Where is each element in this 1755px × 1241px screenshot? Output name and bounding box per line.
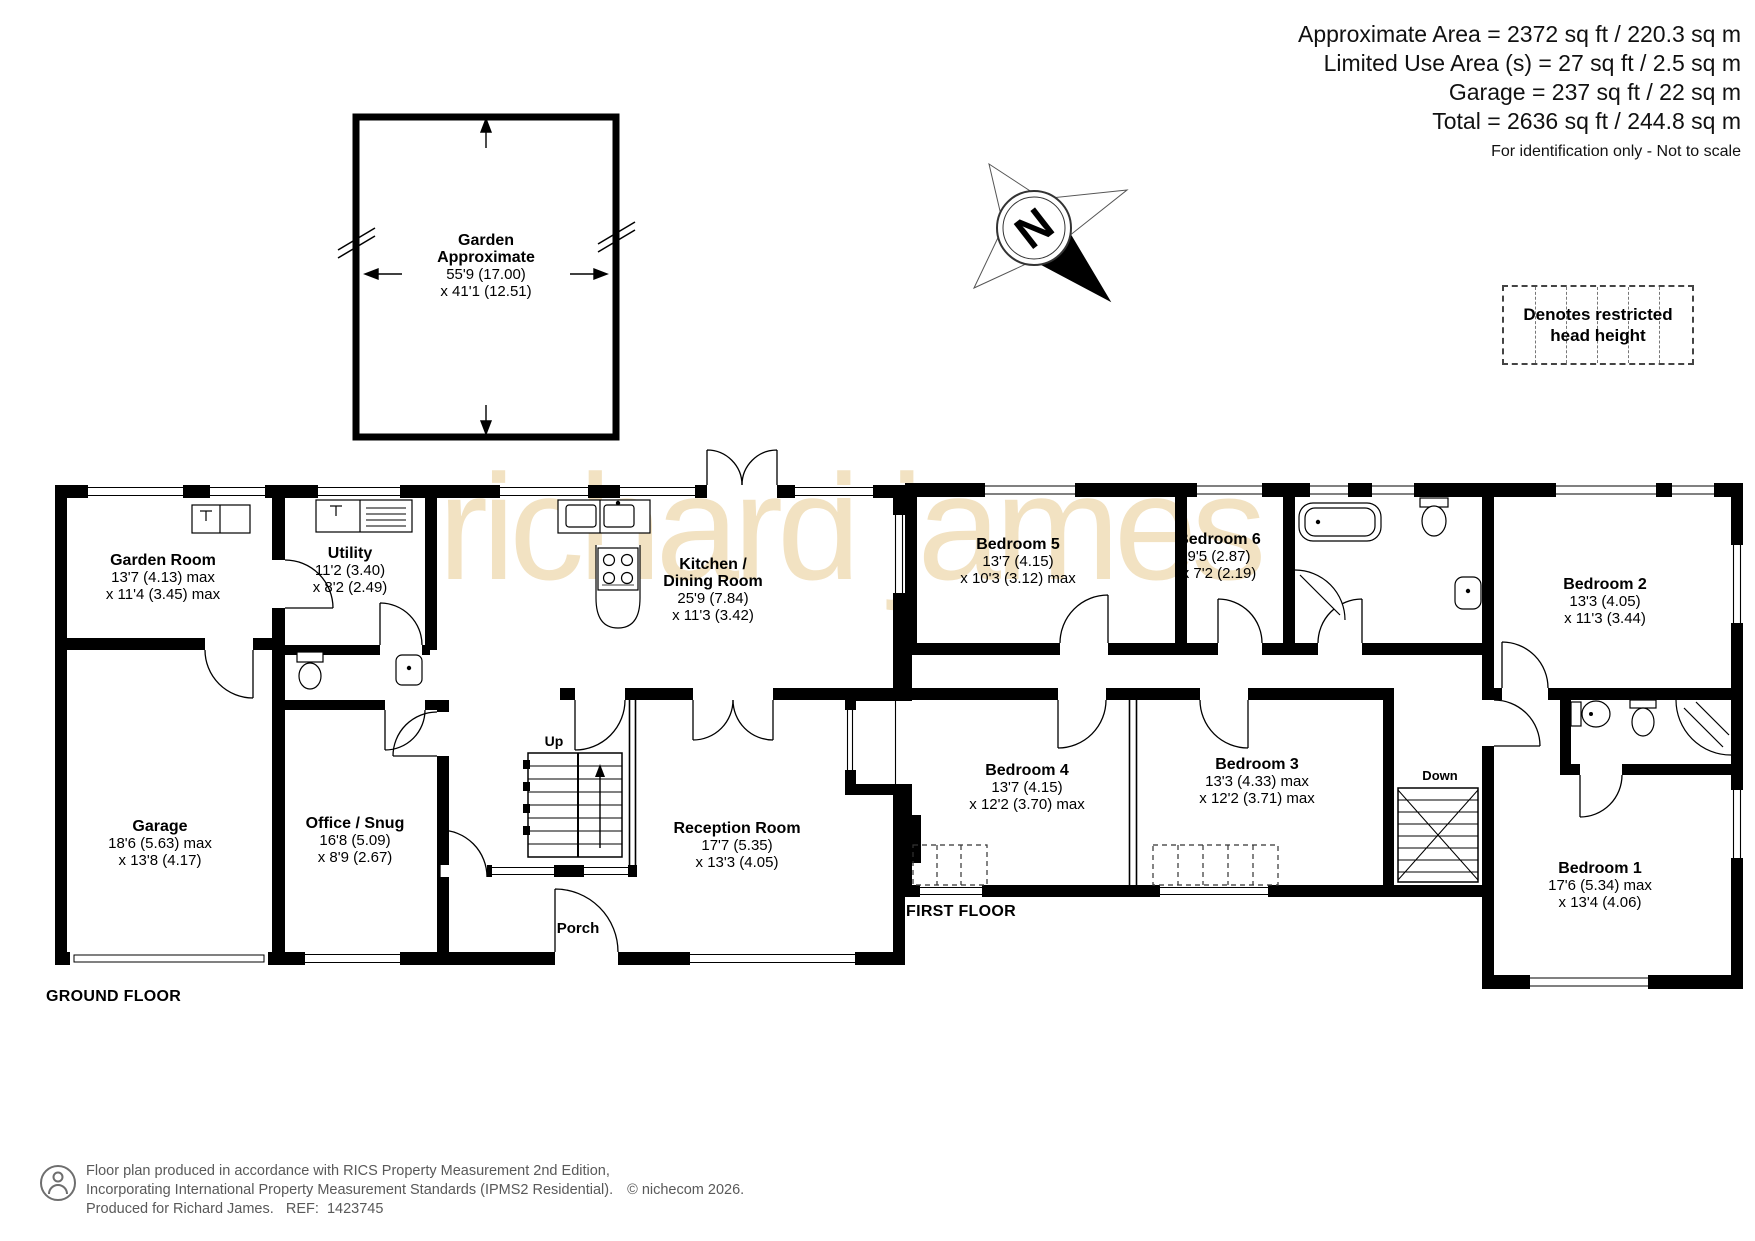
floorplan-page: richard james <box>0 0 1755 1241</box>
toilet-icon <box>1420 498 1448 536</box>
hob-peninsula-icon <box>596 545 640 628</box>
footer-line2: Incorporating International Property Mea… <box>86 1181 744 1200</box>
stairs-down-label: Down <box>1422 768 1457 783</box>
ensuite-basin-icon <box>1571 701 1610 727</box>
plan-drawing: N <box>0 0 1755 1241</box>
room-label-bedroom4: Bedroom 4 13'7 (4.15) x 12'2 (3.70) max <box>969 762 1084 813</box>
room-label-garage: Garage 18'6 (5.63) max x 13'8 (4.17) <box>108 818 212 869</box>
ensuite-toilet-icon <box>1630 700 1656 736</box>
footer: Floor plan produced in accordance with R… <box>86 1162 744 1219</box>
garden-room-unit-icon <box>192 505 250 533</box>
ensuite-corner-shower-icon <box>1676 700 1731 755</box>
basin-icon <box>1455 577 1481 609</box>
legend-text-line2: head height <box>1504 325 1692 346</box>
room-label-kitchen-dining: Kitchen / Dining Room 25'9 (7.84) x 11'3… <box>663 556 763 624</box>
ensuite-fixtures <box>1571 700 1731 755</box>
room-label-bedroom2: Bedroom 2 13'3 (4.05) x 11'3 (3.44) <box>1563 576 1647 627</box>
restricted-head-height-legend: Denotes restricted head height <box>1502 285 1694 365</box>
room-label-office-snug: Office / Snug 16'8 (5.09) x 8'9 (2.67) <box>306 815 405 866</box>
ground-floor-title: GROUND FLOOR <box>46 988 181 1006</box>
bedroom34-partition <box>1130 700 1137 885</box>
approximate-area-line: Approximate Area = 2372 sq ft / 220.3 sq… <box>1298 20 1741 49</box>
room-label-bedroom6: Bedroom 6 9'5 (2.87) x 7'2 (2.19) <box>1177 531 1261 582</box>
ground-floor-plan <box>55 450 921 965</box>
bath-icon <box>1299 503 1381 541</box>
utility-sink-washer-icon <box>316 500 412 532</box>
ground-floor-fixtures <box>192 500 650 689</box>
room-label-garden-room: Garden Room 13'7 (4.13) max x 11'4 (3.45… <box>106 552 220 603</box>
identification-note: For identification only - Not to scale <box>1298 142 1741 162</box>
compass: N <box>974 164 1127 301</box>
room-label-utility: Utility 11'2 (3.40) x 8'2 (2.49) <box>313 545 388 596</box>
total-area-line: Total = 2636 sq ft / 244.8 sq m <box>1298 107 1741 136</box>
kitchen-sink-icon <box>558 500 650 533</box>
room-label-bedroom3: Bedroom 3 13'3 (4.33) max x 12'2 (3.71) … <box>1199 756 1314 807</box>
first-floor-doors <box>1058 595 1622 817</box>
garage-area-line: Garage = 237 sq ft / 22 sq m <box>1298 78 1741 107</box>
person-icon <box>41 1166 75 1200</box>
footer-line3: Produced for Richard James. REF: 1423745 <box>86 1200 744 1219</box>
room-label-garden: Garden Approximate 55'9 (17.00) x 41'1 (… <box>437 232 535 300</box>
stairs-up-label: Up <box>545 733 564 749</box>
copyright: © nichecom 2026. <box>627 1182 744 1198</box>
bathroom-fixtures <box>1295 498 1481 620</box>
wc-toilet-icon <box>297 652 323 689</box>
corner-shower-icon <box>1295 570 1345 620</box>
stairs-down <box>1398 788 1478 882</box>
wc-basin-icon <box>396 655 422 685</box>
area-summary: Approximate Area = 2372 sq ft / 220.3 sq… <box>1298 20 1741 162</box>
reception-partition <box>630 700 636 877</box>
legend-text-line1: Denotes restricted <box>1504 304 1692 325</box>
room-label-reception: Reception Room 17'7 (5.35) x 13'3 (4.05) <box>673 820 800 871</box>
room-label-bedroom5: Bedroom 5 13'7 (4.15) x 10'3 (3.12) max <box>960 536 1075 587</box>
room-label-porch: Porch <box>557 920 600 937</box>
first-floor-title: FIRST FLOOR <box>906 903 1016 921</box>
stairs-up <box>523 753 622 857</box>
restricted-head-height-zones <box>913 845 1278 885</box>
footer-line1: Floor plan produced in accordance with R… <box>86 1162 744 1181</box>
room-label-bedroom1: Bedroom 1 17'6 (5.34) max x 13'4 (4.06) <box>1548 860 1652 911</box>
limited-use-area-line: Limited Use Area (s) = 27 sq ft / 2.5 sq… <box>1298 49 1741 78</box>
